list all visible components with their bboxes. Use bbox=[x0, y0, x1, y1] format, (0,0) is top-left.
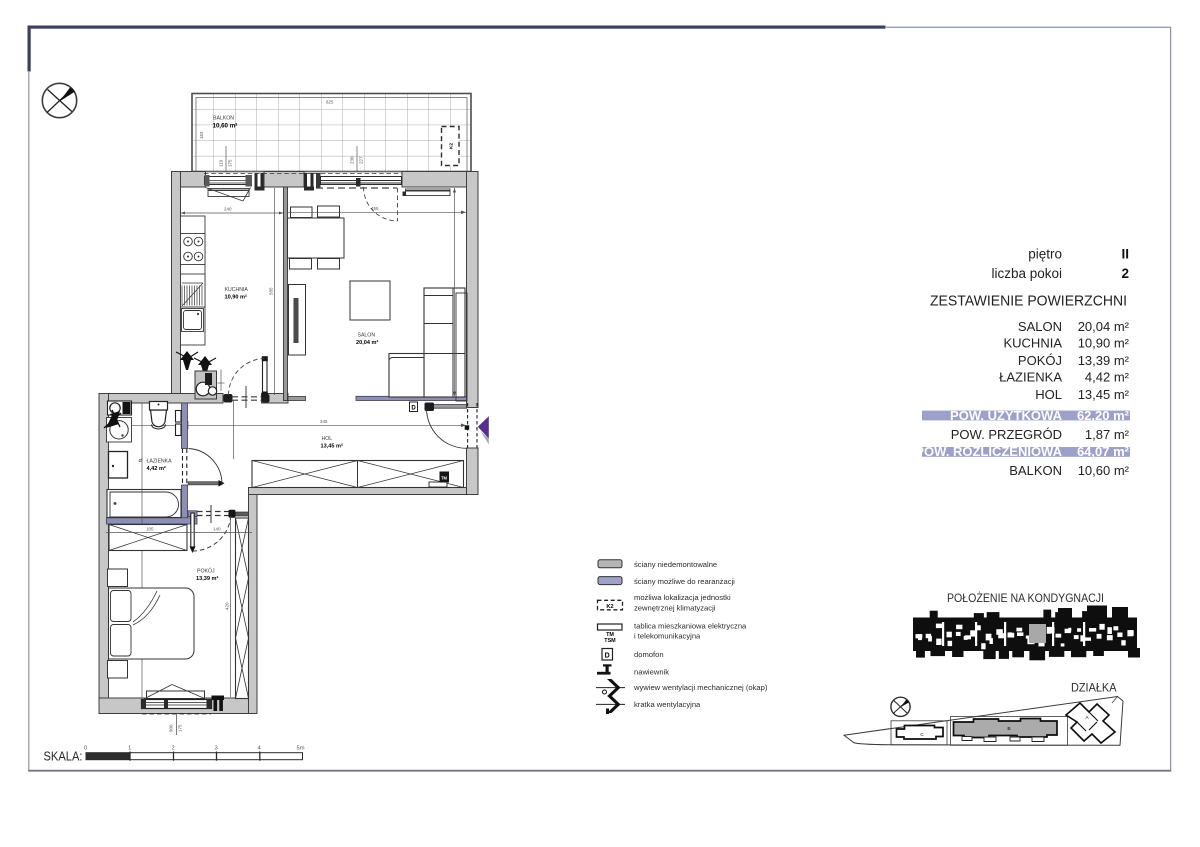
svg-text:13,39 m²: 13,39 m² bbox=[196, 575, 219, 582]
svg-text:140: 140 bbox=[213, 527, 221, 532]
svg-text:DZIAŁKA: DZIAŁKA bbox=[1071, 682, 1117, 695]
svg-text:10,90 m²: 10,90 m² bbox=[1078, 335, 1130, 350]
svg-text:13,45 m²: 13,45 m² bbox=[1078, 387, 1130, 402]
svg-text:ŁAZIENKA: ŁAZIENKA bbox=[999, 370, 1062, 385]
svg-text:10,90 m²: 10,90 m² bbox=[225, 294, 248, 301]
svg-text:62,20 m²: 62,20 m² bbox=[1077, 408, 1130, 423]
svg-text:4,42 m²: 4,42 m² bbox=[147, 465, 166, 472]
svg-text:wywiew wentylacji mechanicznej: wywiew wentylacji mechanicznej (okap) bbox=[633, 683, 768, 692]
svg-text:KUCHNIA: KUCHNIA bbox=[225, 287, 249, 293]
svg-text:SKALA:: SKALA: bbox=[44, 750, 83, 764]
svg-text:ściany niedemontowalne: ściany niedemontowalne bbox=[634, 560, 717, 569]
svg-text:K2: K2 bbox=[606, 604, 613, 610]
svg-text:BALKON: BALKON bbox=[1009, 463, 1062, 478]
svg-text:kratka wentylacyjna: kratka wentylacyjna bbox=[634, 700, 701, 709]
svg-text:10,60 m²: 10,60 m² bbox=[1078, 463, 1130, 478]
svg-text:1,87 m²: 1,87 m² bbox=[1085, 427, 1130, 442]
svg-text:175: 175 bbox=[178, 724, 183, 732]
svg-text:0: 0 bbox=[84, 746, 87, 752]
svg-text:455: 455 bbox=[371, 206, 379, 211]
svg-text:POW. UŻYTKOWA: POW. UŻYTKOWA bbox=[950, 408, 1063, 423]
svg-text:4,42 m²: 4,42 m² bbox=[1085, 370, 1130, 385]
svg-text:B: B bbox=[1007, 726, 1010, 732]
svg-text:nawiewnik: nawiewnik bbox=[634, 668, 669, 677]
svg-text:HOL: HOL bbox=[1035, 387, 1062, 402]
svg-text:SALON: SALON bbox=[358, 333, 376, 339]
svg-text:900: 900 bbox=[169, 724, 174, 732]
svg-text:20,04 m²: 20,04 m² bbox=[356, 339, 379, 346]
svg-text:163: 163 bbox=[199, 131, 204, 139]
svg-text:HOL: HOL bbox=[322, 436, 333, 442]
svg-text:piętro: piętro bbox=[1028, 247, 1062, 262]
svg-text:POW. ROZLICZENIOWA: POW. ROZLICZENIOWA bbox=[915, 444, 1062, 459]
svg-text:10,60 m²: 10,60 m² bbox=[213, 123, 238, 130]
svg-text:175: 175 bbox=[228, 159, 233, 167]
svg-text:D: D bbox=[411, 406, 416, 412]
svg-text:II: II bbox=[1121, 247, 1129, 262]
svg-text:K2: K2 bbox=[449, 143, 455, 149]
svg-text:ściany możliwe do rearanżacji: ściany możliwe do rearanżacji bbox=[634, 577, 735, 586]
svg-text:i telekomunikacyjna: i telekomunikacyjna bbox=[634, 632, 701, 641]
svg-text:ZESTAWIENIE POWIERZCHNI: ZESTAWIENIE POWIERZCHNI bbox=[930, 294, 1127, 310]
svg-text:POKÓJ: POKÓJ bbox=[197, 568, 215, 575]
svg-text:BALKON: BALKON bbox=[213, 116, 234, 122]
svg-text:3: 3 bbox=[215, 746, 218, 752]
svg-text:345: 345 bbox=[320, 419, 328, 424]
svg-text:tablica mieszkaniowa elektrycz: tablica mieszkaniowa elektryczna bbox=[634, 621, 747, 630]
svg-text:2: 2 bbox=[172, 746, 175, 752]
svg-text:1: 1 bbox=[128, 746, 131, 752]
svg-text:230: 230 bbox=[350, 156, 355, 164]
svg-text:5m: 5m bbox=[297, 746, 305, 752]
svg-text:ŁAZIENKA: ŁAZIENKA bbox=[147, 459, 173, 465]
svg-text:420: 420 bbox=[225, 602, 230, 610]
svg-text:możliwa lokalizacja jednostki: możliwa lokalizacja jednostki bbox=[634, 593, 731, 602]
svg-text:D: D bbox=[605, 653, 610, 660]
svg-text:POKÓJ: POKÓJ bbox=[1018, 353, 1062, 368]
svg-text:64,07 m²: 64,07 m² bbox=[1077, 444, 1130, 459]
svg-text:13,45 m²: 13,45 m² bbox=[321, 443, 344, 450]
svg-text:2: 2 bbox=[1121, 266, 1129, 281]
svg-text:POW. PRZEGRÓD: POW. PRZEGRÓD bbox=[951, 427, 1062, 442]
svg-text:227: 227 bbox=[359, 156, 364, 164]
svg-text:585: 585 bbox=[269, 287, 274, 295]
svg-text:TM: TM bbox=[441, 476, 448, 481]
svg-text:13,39 m²: 13,39 m² bbox=[1078, 353, 1130, 368]
svg-text:liczba pokoi: liczba pokoi bbox=[991, 266, 1062, 281]
svg-text:240: 240 bbox=[224, 207, 232, 212]
svg-text:20,04 m²: 20,04 m² bbox=[1078, 319, 1130, 334]
svg-text:zewnętrznej klimatyzacji: zewnętrznej klimatyzacji bbox=[634, 603, 716, 612]
svg-text:105: 105 bbox=[146, 527, 154, 532]
svg-text:825: 825 bbox=[326, 100, 334, 105]
svg-text:110: 110 bbox=[219, 159, 224, 167]
svg-text:POŁOŻENIE NA KONDYGNACJI: POŁOŻENIE NA KONDYGNACJI bbox=[947, 592, 1104, 605]
svg-text:TSM: TSM bbox=[604, 638, 616, 644]
svg-text:domofon: domofon bbox=[634, 650, 664, 659]
svg-text:KUCHNIA: KUCHNIA bbox=[1003, 335, 1062, 350]
svg-text:SALON: SALON bbox=[1018, 319, 1062, 334]
